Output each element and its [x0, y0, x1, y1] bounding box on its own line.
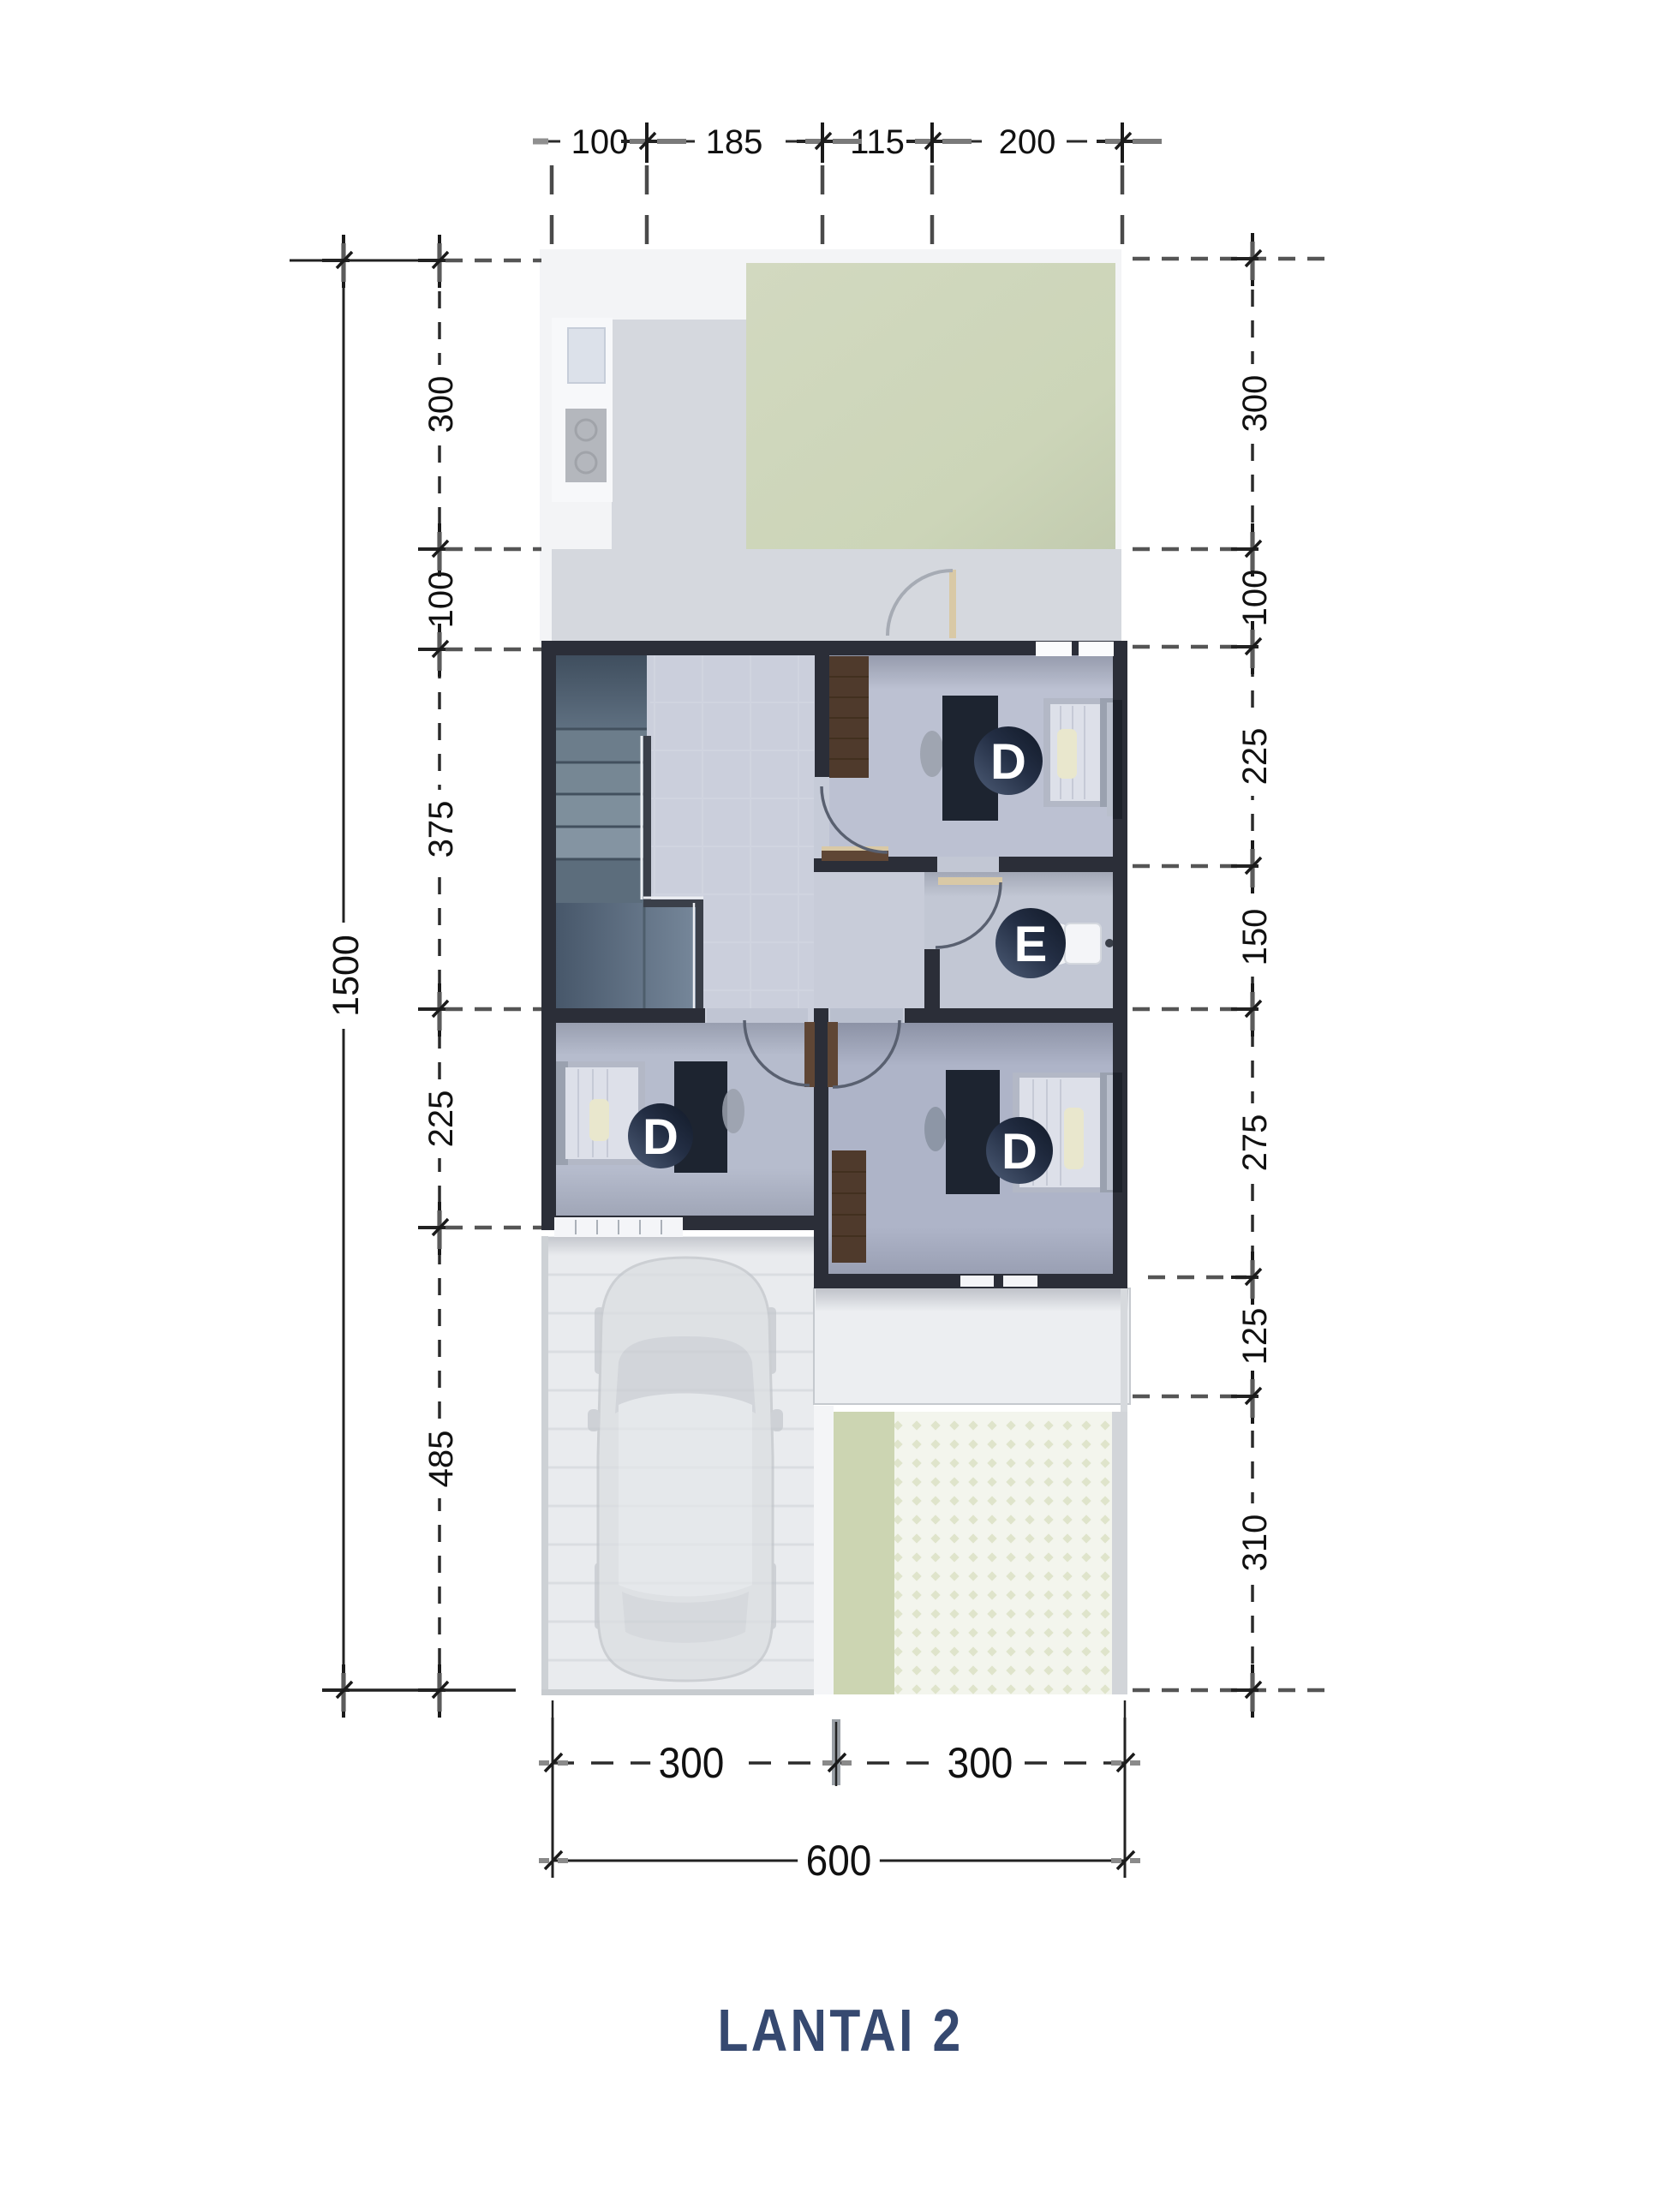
svg-text:310: 310: [1236, 1515, 1274, 1572]
svg-text:485: 485: [422, 1431, 460, 1488]
svg-text:125: 125: [1236, 1308, 1274, 1365]
svg-text:E: E: [1014, 917, 1048, 972]
svg-text:185: 185: [706, 123, 763, 161]
svg-text:D: D: [1001, 1124, 1037, 1180]
svg-text:225: 225: [422, 1091, 460, 1148]
svg-text:300: 300: [948, 1740, 1013, 1787]
svg-text:600: 600: [806, 1837, 872, 1885]
svg-text:150: 150: [1236, 909, 1274, 966]
svg-text:300: 300: [659, 1740, 725, 1787]
svg-text:100: 100: [1236, 570, 1274, 627]
svg-text:300: 300: [1236, 375, 1274, 433]
svg-text:375: 375: [422, 801, 460, 858]
svg-text:100: 100: [422, 571, 460, 629]
svg-text:300: 300: [422, 376, 460, 433]
svg-text:D: D: [990, 734, 1026, 790]
svg-text:200: 200: [999, 123, 1056, 161]
svg-text:1500: 1500: [326, 935, 367, 1017]
svg-text:275: 275: [1236, 1114, 1274, 1172]
svg-text:D: D: [643, 1109, 679, 1165]
svg-text:100: 100: [571, 123, 629, 161]
svg-text:225: 225: [1236, 728, 1274, 786]
svg-text:LANTAI 2: LANTAI 2: [717, 1996, 963, 2064]
